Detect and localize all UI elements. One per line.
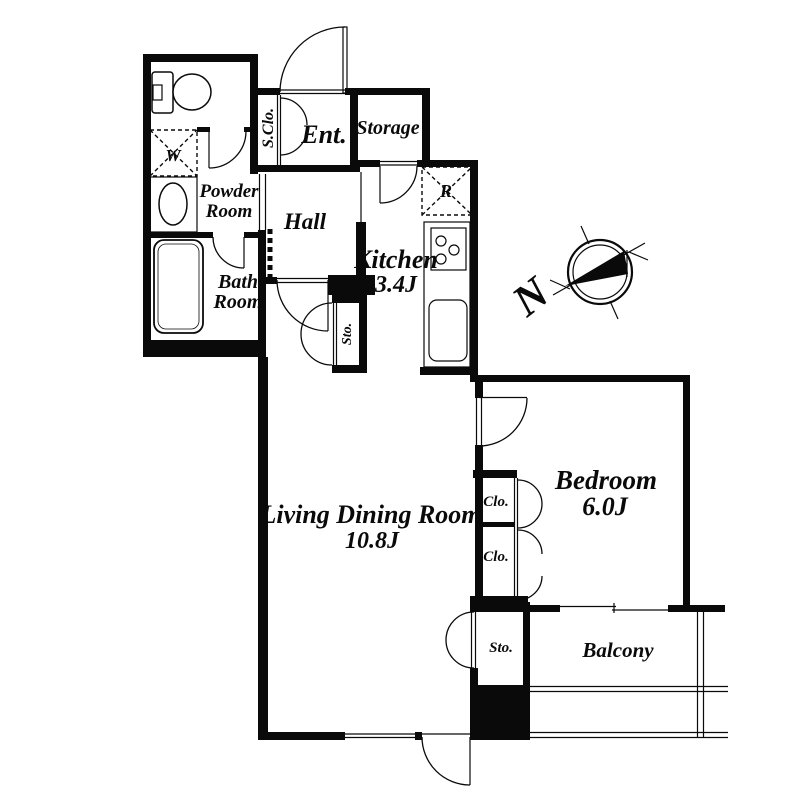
- bath-room-label-1: Bath: [217, 271, 258, 293]
- bedroom-label: Bedroom: [554, 465, 657, 495]
- bedroom-size-label: 6.0J: [582, 492, 629, 521]
- living-dining-size-label: 10.8J: [345, 528, 400, 554]
- bath-room-label-2: Room: [213, 291, 263, 313]
- floor-plan-page: N Ent. S.Clo. Storage W Powder Room Hall…: [0, 0, 800, 800]
- powder-room-label-1: Powder: [198, 181, 259, 202]
- toilet-fixture: [152, 72, 211, 113]
- storage-label: Storage: [356, 117, 419, 139]
- balcony-label: Balcony: [581, 638, 654, 662]
- closet1-label: Clo.: [483, 494, 508, 510]
- powder-room-label-2: Room: [205, 201, 252, 222]
- hall-storage-label: Sto.: [340, 323, 355, 345]
- kitchen-size-label: 3.4J: [374, 272, 418, 298]
- closet2-label: Clo.: [483, 549, 508, 565]
- balcony-storage-label: Sto.: [489, 640, 513, 656]
- living-dining-label: Living Dining Room: [259, 500, 481, 529]
- entrance-label: Ent.: [300, 120, 347, 149]
- kitchen-label: Kitchen: [353, 245, 438, 274]
- washer-label: W: [165, 146, 182, 165]
- shoe-closet-label: S.Clo.: [260, 108, 277, 148]
- hall-label: Hall: [283, 209, 327, 234]
- floor-plan-drawing: N Ent. S.Clo. Storage W Powder Room Hall…: [0, 0, 800, 800]
- refrigerator-label: R: [439, 181, 452, 201]
